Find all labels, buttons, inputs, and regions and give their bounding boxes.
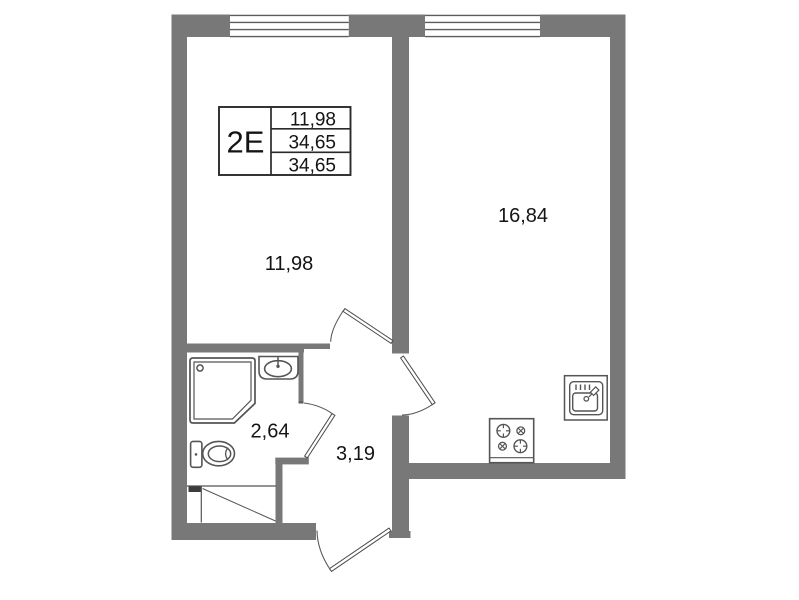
svg-text:2,64: 2,64 [251,421,290,443]
svg-text:16,84: 16,84 [498,205,548,227]
svg-text:34,65: 34,65 [288,132,336,153]
svg-text:3,19: 3,19 [336,443,375,465]
svg-text:11,98: 11,98 [290,109,336,130]
svg-text:2E: 2E [227,125,265,160]
svg-text:34,65: 34,65 [288,155,336,176]
svg-text:11,98: 11,98 [265,253,314,275]
